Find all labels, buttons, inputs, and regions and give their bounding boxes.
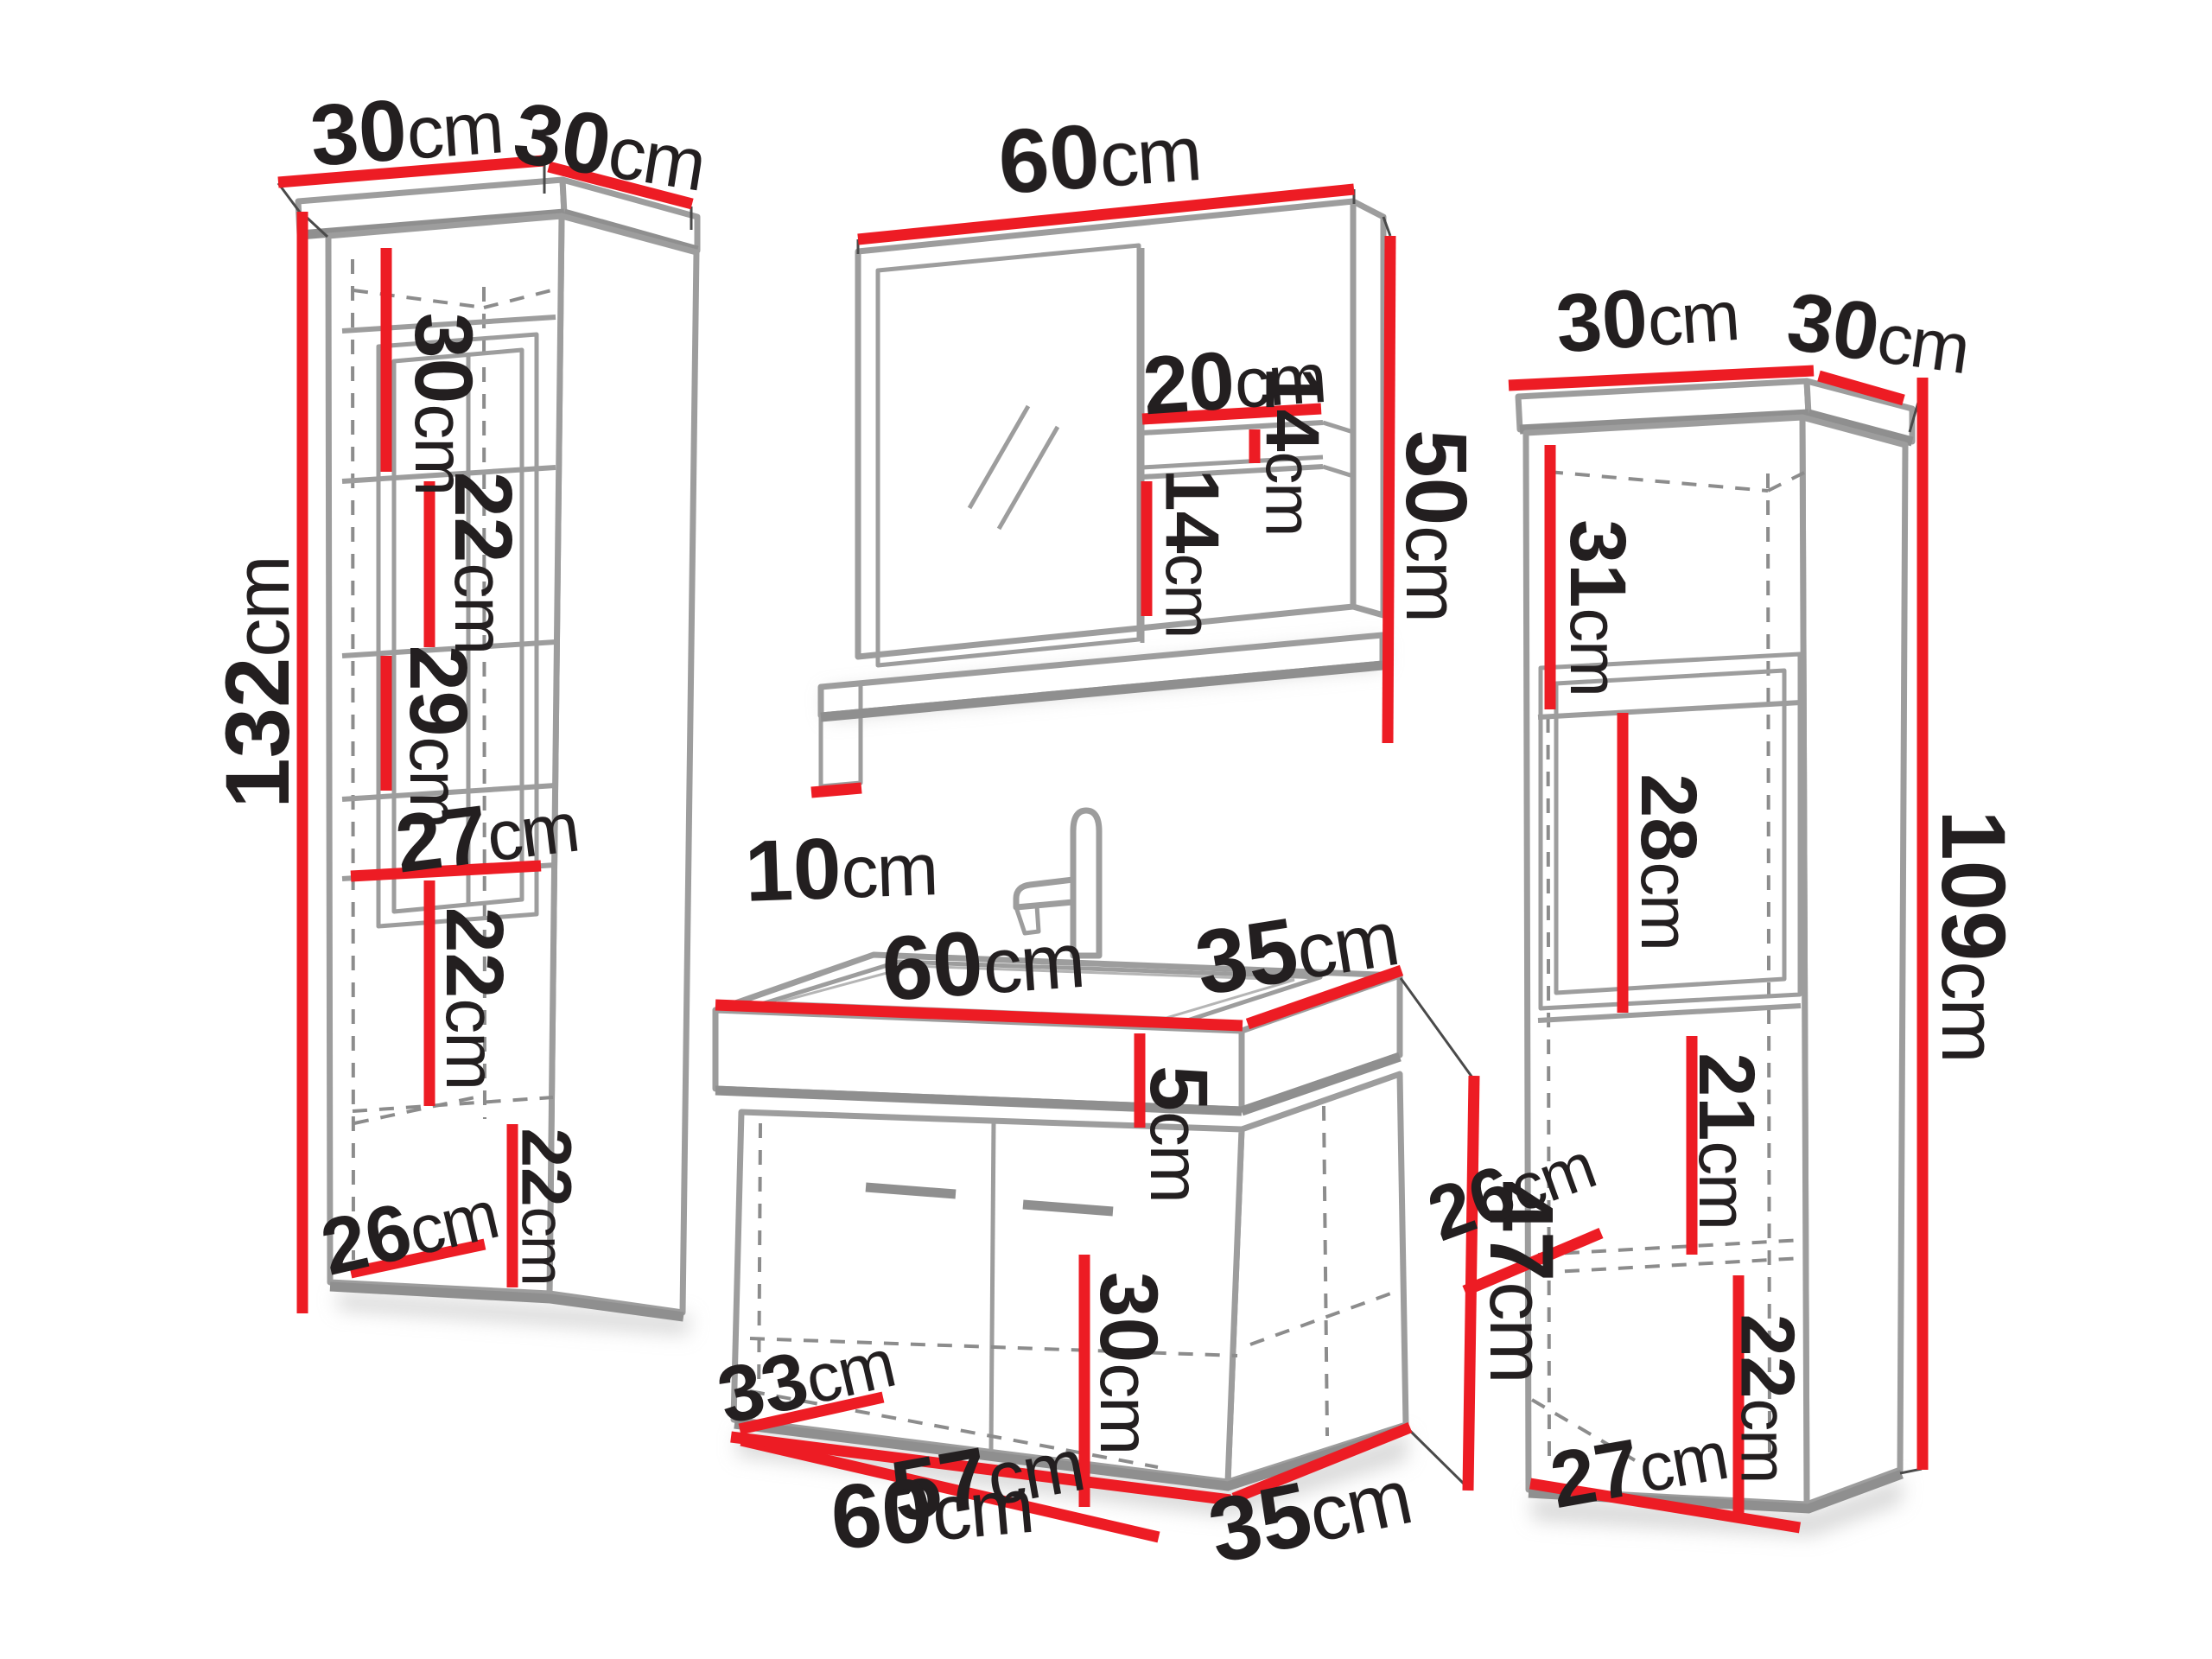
label-left-comp2: 22cm (437, 472, 529, 654)
label-left-height: 132cm (207, 556, 308, 809)
vanity-door-gap (991, 1121, 994, 1450)
label-right-comp3: 21cm (1682, 1052, 1770, 1229)
label-mirror-ledge-depth: 10cm (743, 817, 938, 920)
label-mirror-gap-top: 14cm (1249, 367, 1335, 536)
label-right-height: 109cm (1923, 810, 2024, 1062)
label-left-side-comp: 22cm (506, 1128, 585, 1284)
mirror-side-sliver (1353, 201, 1383, 615)
label-right-comp1: 31cm (1554, 519, 1642, 696)
label-mirror-height: 50cm (1388, 429, 1484, 621)
label-mirror-width: 60cm (995, 99, 1204, 213)
furniture-dimension-diagram: 30cm 30cm 132cm 30cm 22cm 29cm 27cm 22cm… (0, 0, 2212, 1659)
vanity-side-face (1228, 1074, 1406, 1482)
label-left-top-width: 30cm (308, 74, 505, 184)
right-cabinet-side-face (1802, 417, 1905, 1504)
label-right-top-width: 30cm (1553, 266, 1740, 370)
dim-line-mirror-ledge-depth (811, 788, 861, 792)
label-vanity-top-width: 60cm (879, 906, 1087, 1020)
label-vanity-basin-height: 5cm (1133, 1065, 1224, 1202)
label-right-comp2: 28cm (1624, 773, 1713, 950)
label-vanity-inner-height: 30cm (1083, 1272, 1174, 1454)
diagram-canvas: 30cm 30cm 132cm 30cm 22cm 29cm 27cm 22cm… (0, 0, 2212, 1659)
label-left-comp4: 22cm (429, 907, 520, 1090)
label-left-comp1: 30cm (397, 313, 489, 495)
label-mirror-gap-bottom: 14cm (1149, 469, 1235, 638)
label-right-comp4: 22cm (1725, 1314, 1810, 1483)
